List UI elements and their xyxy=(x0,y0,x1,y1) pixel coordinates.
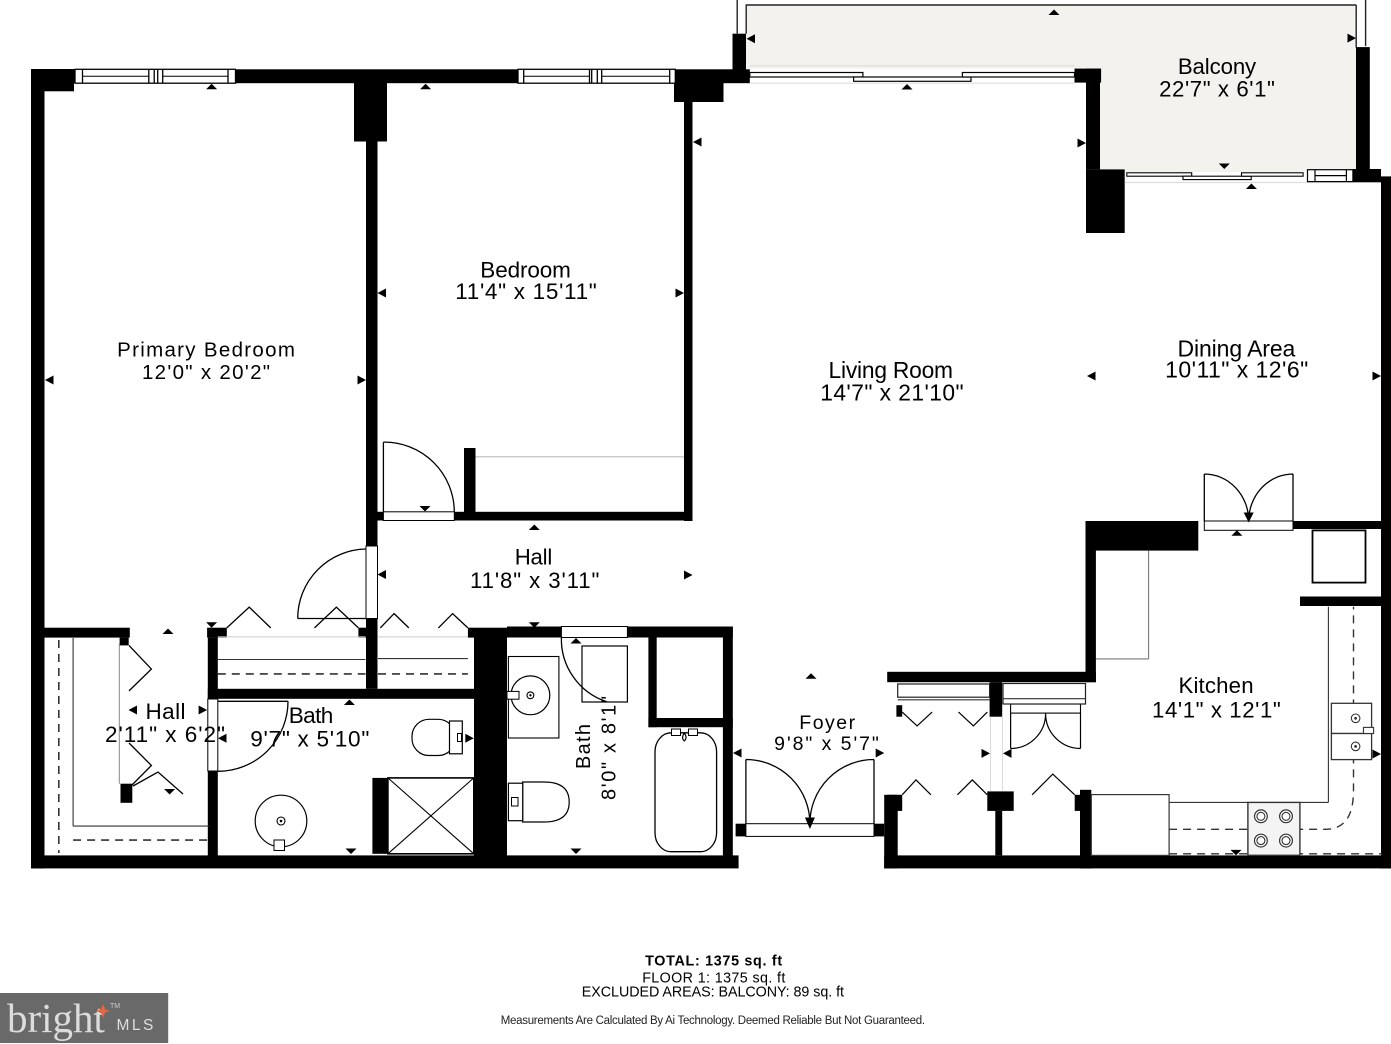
svg-text:14'1" x 12'1": 14'1" x 12'1" xyxy=(1152,698,1281,723)
svg-text:Bath: Bath xyxy=(573,724,595,769)
svg-text:Measurements Are Calculated By: Measurements Are Calculated By Ai Techno… xyxy=(501,1015,925,1027)
svg-text:bright: bright xyxy=(7,995,106,1041)
svg-text:TM: TM xyxy=(110,1003,120,1010)
svg-text:TOTAL: 1375 sq. ft: TOTAL: 1375 sq. ft xyxy=(645,953,782,969)
svg-text:9'7" x 5'10": 9'7" x 5'10" xyxy=(250,726,369,751)
svg-text:Bath: Bath xyxy=(289,703,334,728)
svg-text:12'0" x 20'2": 12'0" x 20'2" xyxy=(142,361,270,384)
svg-text:11'4" x 15'11": 11'4" x 15'11" xyxy=(455,279,597,304)
svg-text:14'7" x 21'10": 14'7" x 21'10" xyxy=(820,380,963,406)
svg-text:8'0" x 8'1": 8'0" x 8'1" xyxy=(599,696,621,800)
svg-text:2'11" x 6'2": 2'11" x 6'2" xyxy=(105,722,225,747)
svg-text:EXCLUDED AREAS: BALCONY: 89 sq: EXCLUDED AREAS: BALCONY: 89 sq. ft xyxy=(582,984,844,1000)
svg-text:MLS: MLS xyxy=(117,1017,156,1034)
svg-text:9'8" x 5'7": 9'8" x 5'7" xyxy=(774,733,879,755)
svg-text:Kitchen: Kitchen xyxy=(1178,673,1253,698)
svg-text:22'7" x 6'1": 22'7" x 6'1" xyxy=(1159,77,1275,102)
svg-text:Primary Bedroom: Primary Bedroom xyxy=(117,339,295,362)
svg-text:Hall: Hall xyxy=(145,699,185,724)
svg-text:Balcony: Balcony xyxy=(1178,54,1257,79)
svg-text:11'8" x 3'11": 11'8" x 3'11" xyxy=(470,568,599,593)
svg-text:10'11" x 12'6": 10'11" x 12'6" xyxy=(1165,356,1308,382)
svg-text:Hall: Hall xyxy=(515,545,553,570)
